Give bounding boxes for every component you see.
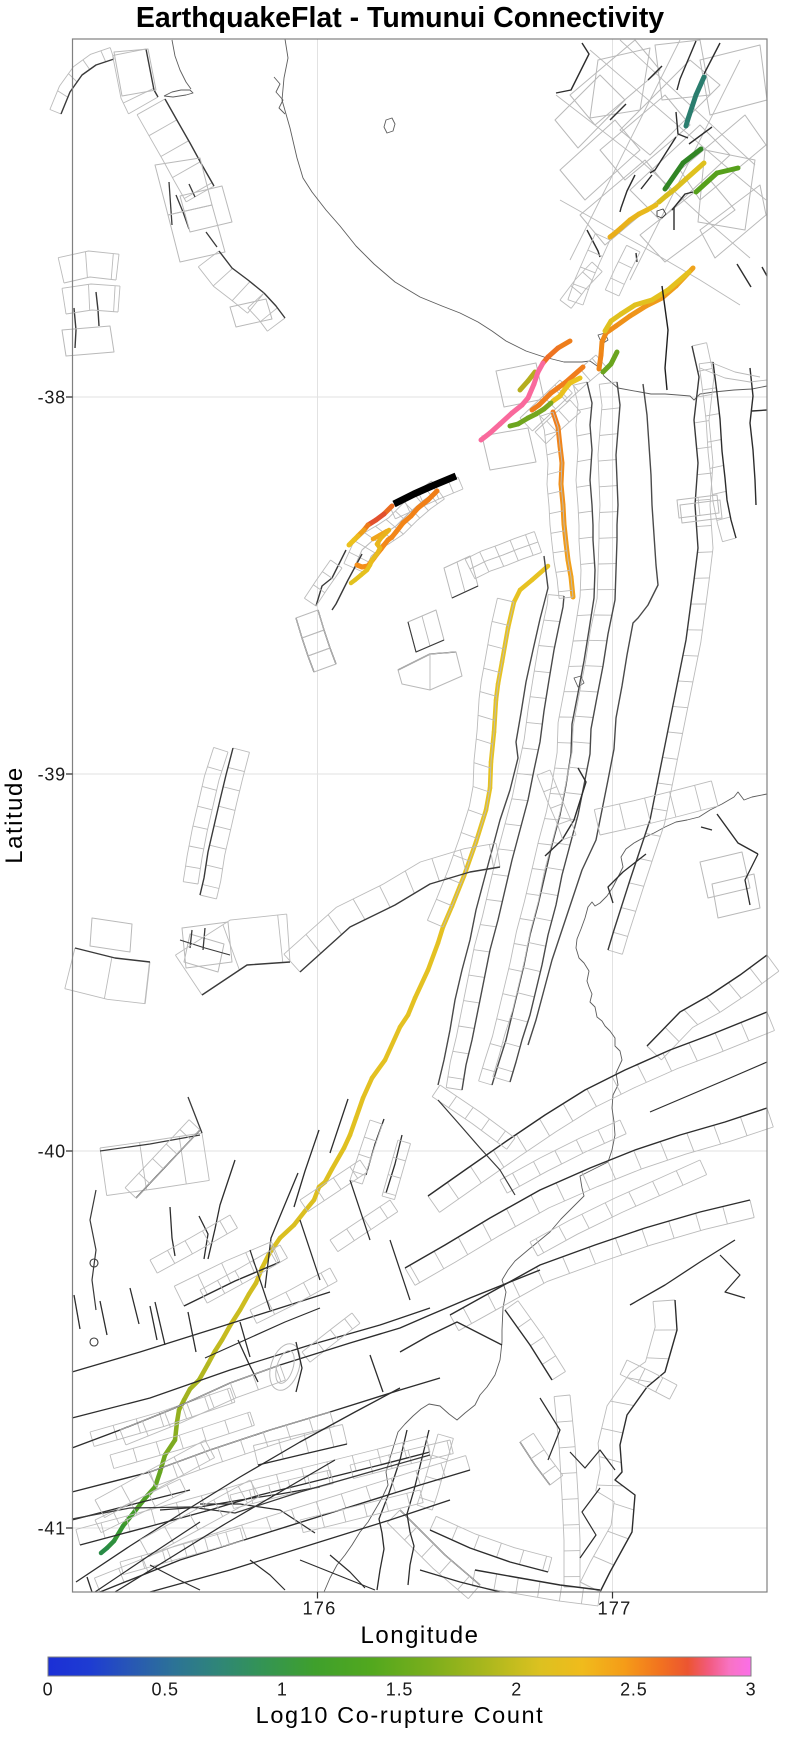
svg-text:2.5: 2.5 bbox=[620, 1680, 647, 1700]
svg-text:0.5: 0.5 bbox=[151, 1680, 178, 1700]
svg-text:Latitude: Latitude bbox=[1, 766, 28, 863]
svg-text:-41: -41 bbox=[38, 1519, 66, 1539]
svg-text:-40: -40 bbox=[38, 1142, 66, 1162]
svg-text:3: 3 bbox=[746, 1680, 757, 1700]
svg-text:EarthquakeFlat - Tumunui Conne: EarthquakeFlat - Tumunui Connectivity bbox=[136, 2, 664, 34]
svg-text:2: 2 bbox=[511, 1680, 522, 1700]
svg-text:Longitude: Longitude bbox=[361, 1622, 480, 1649]
svg-text:1.5: 1.5 bbox=[386, 1680, 413, 1700]
svg-text:176: 176 bbox=[302, 1598, 336, 1619]
svg-text:1: 1 bbox=[277, 1680, 288, 1700]
svg-text:0: 0 bbox=[43, 1680, 54, 1700]
svg-text:-38: -38 bbox=[38, 388, 66, 408]
svg-text:177: 177 bbox=[597, 1598, 631, 1619]
svg-text:Log10 Co-rupture Count: Log10 Co-rupture Count bbox=[256, 1702, 545, 1728]
svg-text:-39: -39 bbox=[38, 765, 66, 785]
